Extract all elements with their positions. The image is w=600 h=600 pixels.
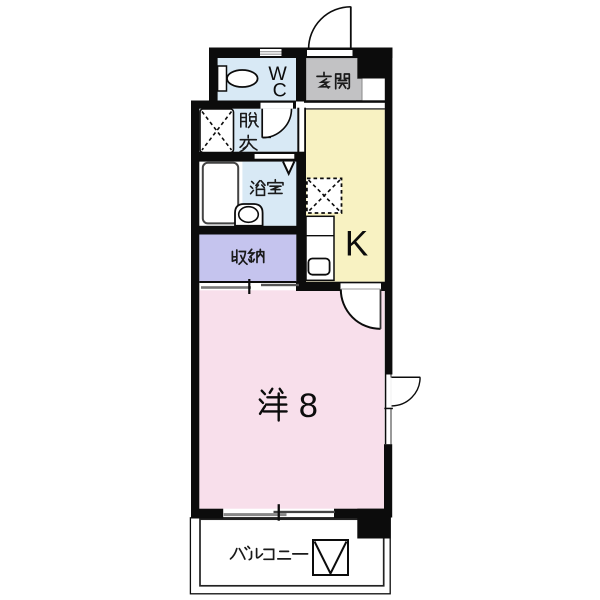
svg-text:8: 8 — [299, 387, 318, 425]
svg-text:K: K — [345, 224, 368, 263]
svg-text:C: C — [273, 79, 287, 101]
